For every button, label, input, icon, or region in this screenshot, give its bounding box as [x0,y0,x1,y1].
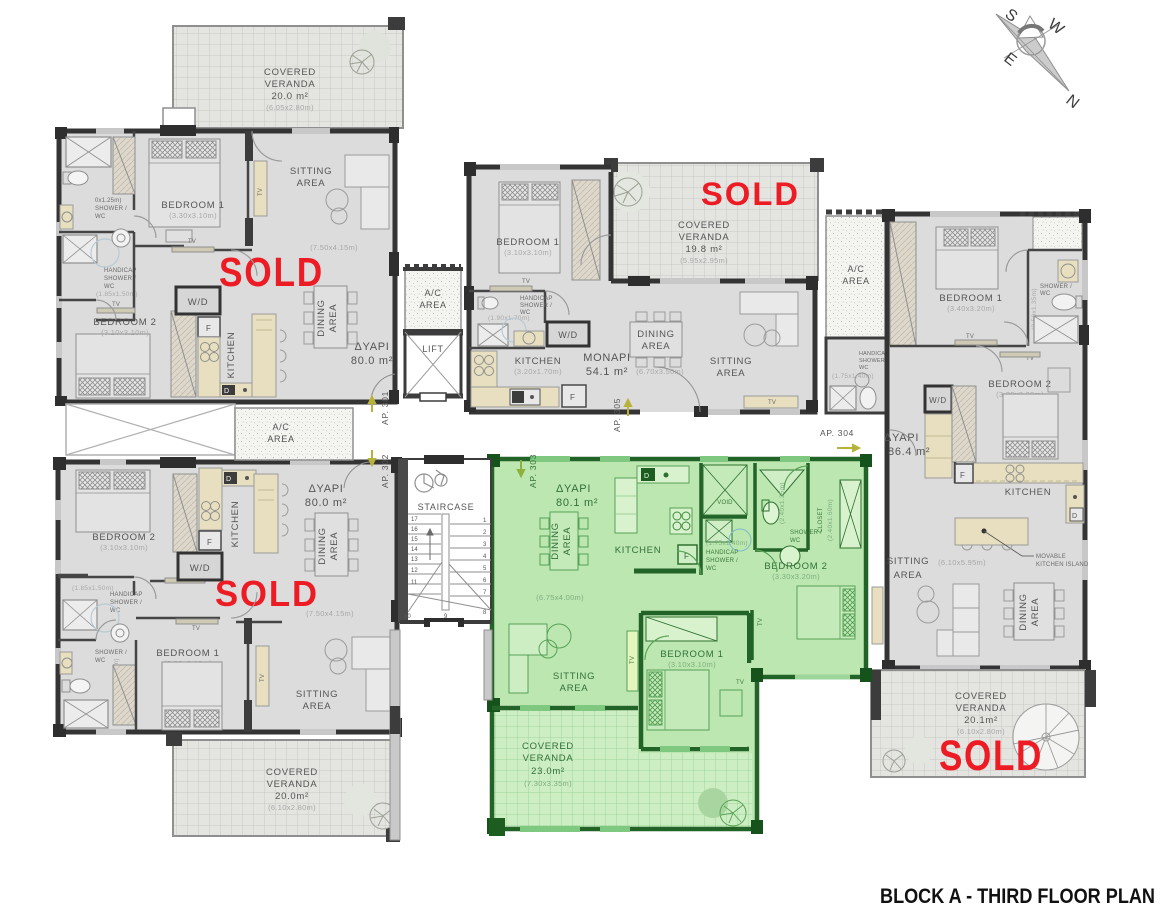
svg-text:14: 14 [411,547,418,553]
svg-text:SHOWER /: SHOWER / [95,650,127,656]
svg-text:SITTING: SITTING [887,556,929,567]
svg-text:KITCHEN: KITCHEN [615,545,662,556]
svg-text:HANDICAP: HANDICAP [520,296,553,302]
svg-text:D: D [1072,513,1078,520]
svg-text:HANDICAP: HANDICAP [104,268,137,274]
svg-text:(3.10x3.10m): (3.10x3.10m) [100,543,148,552]
svg-text:TV: TV [258,188,264,196]
svg-text:TV: TV [736,680,744,686]
svg-text:ΔYAPI: ΔYAPI [884,432,919,444]
svg-text:(7.30x3.35m): (7.30x3.35m) [524,779,572,788]
svg-text:20.1m²: 20.1m² [964,715,998,726]
svg-text:(1.85x1.50m): (1.85x1.50m) [72,585,114,592]
svg-text:TV: TV [192,626,200,632]
svg-text:80.0 m²: 80.0 m² [351,355,393,367]
svg-text:AREA: AREA [297,178,326,189]
svg-text:BEDROOM 1: BEDROOM 1 [156,648,219,659]
svg-text:CLOSET: CLOSET [818,507,824,532]
svg-text:AREA: AREA [419,300,446,310]
svg-text:AREA: AREA [560,683,589,694]
svg-text:W/D: W/D [190,563,211,574]
svg-text:F: F [960,471,966,480]
svg-text:TV: TV [966,334,974,340]
svg-text:80.1 m²: 80.1 m² [556,497,598,509]
svg-text:COVERED: COVERED [678,220,730,231]
svg-text:(6.75x4.00m): (6.75x4.00m) [536,593,584,602]
svg-text:KITCHEN: KITCHEN [226,332,237,379]
svg-text:WC: WC [859,365,869,371]
svg-text:ΔYAPI: ΔYAPI [354,341,389,353]
svg-text:(3.10x3.10m): (3.10x3.10m) [101,328,149,337]
svg-text:AREA: AREA [562,527,573,556]
svg-text:TV: TV [630,656,636,664]
svg-text:WC: WC [95,658,106,664]
svg-text:A/C: A/C [424,288,441,298]
svg-text:SHOWER /: SHOWER / [110,600,142,606]
svg-text:TV: TV [758,618,764,626]
svg-text:16: 16 [411,527,418,533]
svg-text:AREA: AREA [1030,598,1041,627]
svg-text:(1.75x1.40m): (1.75x1.40m) [706,540,748,547]
svg-text:SITTING: SITTING [296,689,338,700]
svg-text:AREA: AREA [303,701,332,712]
svg-text:(1.85x1.50m): (1.85x1.50m) [96,291,138,298]
svg-text:D: D [226,476,231,483]
svg-text:TV: TV [522,279,530,285]
svg-text:ΔYAPI: ΔYAPI [308,483,343,495]
svg-text:COVERED: COVERED [522,741,574,752]
svg-text:SITTING: SITTING [553,671,595,682]
svg-text:AP. 305: AP. 305 [612,398,622,432]
svg-text:STAIRCASE: STAIRCASE [418,502,475,512]
svg-text:AREA: AREA [842,276,869,286]
svg-text:(2.40x1.35m): (2.40x1.35m) [779,482,786,524]
svg-text:20.0 m²: 20.0 m² [271,91,308,102]
svg-text:ΔYAPI: ΔYAPI [556,483,591,495]
svg-text:SHOWER /: SHOWER / [1040,284,1072,290]
svg-text:DINING: DINING [316,299,327,336]
svg-text:W/D: W/D [558,330,578,340]
svg-text:LIFT: LIFT [422,344,443,354]
svg-text:AREA: AREA [267,434,294,444]
svg-text:AREA: AREA [717,368,746,379]
svg-text:TV: TV [188,239,196,245]
svg-text:BLOCK A - THIRD FLOOR PLAN: BLOCK A - THIRD FLOOR PLAN [880,884,1155,908]
svg-text:VOID: VOID [717,500,733,506]
svg-text:BEDROOM 1: BEDROOM 1 [939,293,1002,304]
svg-text:SHOWER /: SHOWER / [95,206,127,212]
svg-text:AP. 304: AP. 304 [820,428,854,438]
svg-text:D: D [644,473,649,480]
svg-text:VERANDA: VERANDA [523,753,574,764]
svg-text:WC: WC [1040,291,1051,297]
svg-text:KITCHEN: KITCHEN [230,501,241,548]
svg-text:TV: TV [260,674,266,682]
svg-text:F: F [206,324,212,333]
svg-text:D: D [224,388,229,395]
svg-text:VERANDA: VERANDA [265,79,316,90]
svg-text:COVERED: COVERED [264,67,316,78]
svg-text:COVERED: COVERED [955,691,1007,702]
svg-text:BEDROOM 1: BEDROOM 1 [496,237,559,248]
svg-text:SHOWER /: SHOWER / [706,558,738,564]
svg-text:BEDROOM 1: BEDROOM 1 [161,200,224,211]
svg-text:0x1.25m): 0x1.25m) [95,198,122,204]
svg-text:SITTING: SITTING [710,356,752,367]
svg-text:10: 10 [404,614,411,620]
svg-text:KITCHEN: KITCHEN [1005,487,1052,498]
svg-text:AREA: AREA [328,304,339,333]
svg-text:SOLD: SOLD [701,176,800,212]
svg-text:AREA: AREA [642,341,671,352]
svg-text:BEDROOM 1: BEDROOM 1 [660,649,723,660]
svg-text:DINING: DINING [550,522,561,559]
svg-text:(5.95x2.95m): (5.95x2.95m) [680,256,728,265]
svg-text:23.0m²: 23.0m² [531,766,565,777]
svg-text:(6.05x2.80m): (6.05x2.80m) [266,103,314,112]
svg-text:(6.10x5.95m): (6.10x5.95m) [938,558,986,567]
svg-text:WC: WC [104,284,115,290]
svg-text:TV: TV [112,302,120,308]
svg-text:(7.50x4.15m): (7.50x4.15m) [306,609,354,618]
svg-text:54.1 m²: 54.1 m² [586,366,628,378]
svg-text:VERANDA: VERANDA [679,232,730,243]
svg-text:DINING: DINING [317,527,328,564]
svg-text:HANDICAP: HANDICAP [706,550,739,556]
svg-text:SHOWER /: SHOWER / [520,303,552,309]
svg-text:W/D: W/D [188,297,209,308]
svg-text:12: 12 [411,568,418,574]
svg-text:20.0m²: 20.0m² [275,791,309,802]
svg-text:13: 13 [411,557,418,563]
svg-text:WC: WC [95,214,106,220]
svg-text:F: F [570,393,576,402]
svg-text:MONAPI: MONAPI [583,352,631,364]
svg-text:SOLD: SOLD [939,732,1043,780]
svg-text:SOLD: SOLD [215,573,319,614]
svg-text:DINING: DINING [637,329,674,340]
svg-text:COVERED: COVERED [266,767,318,778]
svg-text:(3.10x3.10m): (3.10x3.10m) [504,248,552,257]
svg-text:F: F [207,538,213,547]
svg-text:(6.10x2.80m): (6.10x2.80m) [268,803,316,812]
svg-text:WC: WC [790,538,801,544]
svg-text:AP. 303: AP. 303 [528,454,538,488]
svg-text:VERANDA: VERANDA [267,779,318,790]
svg-text:(2.40x1.60m): (2.40x1.60m) [827,499,834,541]
svg-text:AREA: AREA [329,532,340,561]
svg-text:W/D: W/D [929,396,947,405]
svg-text:HANDICAP: HANDICAP [110,592,143,598]
svg-text:KITCHEN: KITCHEN [515,356,562,367]
svg-text:AP. 301: AP. 301 [380,391,390,425]
svg-text:(3.20x1.70m): (3.20x1.70m) [514,367,562,376]
svg-text:VERANDA: VERANDA [956,703,1007,714]
svg-text:(3.10x3.10m): (3.10x3.10m) [668,660,716,669]
svg-text:BEDROOM 2: BEDROOM 2 [93,317,156,328]
svg-text:AREA: AREA [894,570,923,581]
svg-text:DINING: DINING [1018,593,1029,630]
svg-text:(6.70x3.50m): (6.70x3.50m) [636,367,684,376]
svg-text:(3.40x3.20m): (3.40x3.20m) [947,304,995,313]
svg-text:A/C: A/C [272,422,289,432]
svg-text:TV: TV [768,400,776,406]
svg-text:SOLD: SOLD [219,249,324,295]
svg-text:11: 11 [411,580,418,586]
svg-text:SHOWER /: SHOWER / [859,358,889,364]
svg-text:SHOWER /: SHOWER / [104,276,136,282]
svg-text:WC: WC [706,566,717,572]
svg-text:(3.30x3.10m): (3.30x3.10m) [169,211,217,220]
svg-text:86.4 m²: 86.4 m² [888,446,930,458]
svg-text:19.8 m²: 19.8 m² [685,244,722,255]
svg-text:15: 15 [411,537,418,543]
svg-text:A/C: A/C [847,264,864,274]
svg-text:SITTING: SITTING [290,166,332,177]
svg-text:AP. 302: AP. 302 [380,454,390,488]
svg-text:17: 17 [411,517,418,523]
svg-text:MOVABLE: MOVABLE [1036,554,1066,560]
svg-text:(3.30x3.20m): (3.30x3.20m) [772,572,820,581]
svg-text:80.0 m²: 80.0 m² [305,497,347,509]
svg-text:BEDROOM 2: BEDROOM 2 [988,379,1051,390]
svg-text:KITCHEN ISLAND: KITCHEN ISLAND [1036,562,1089,568]
svg-text:BEDROOM 2: BEDROOM 2 [92,532,155,543]
svg-text:BEDROOM 2: BEDROOM 2 [764,561,827,572]
